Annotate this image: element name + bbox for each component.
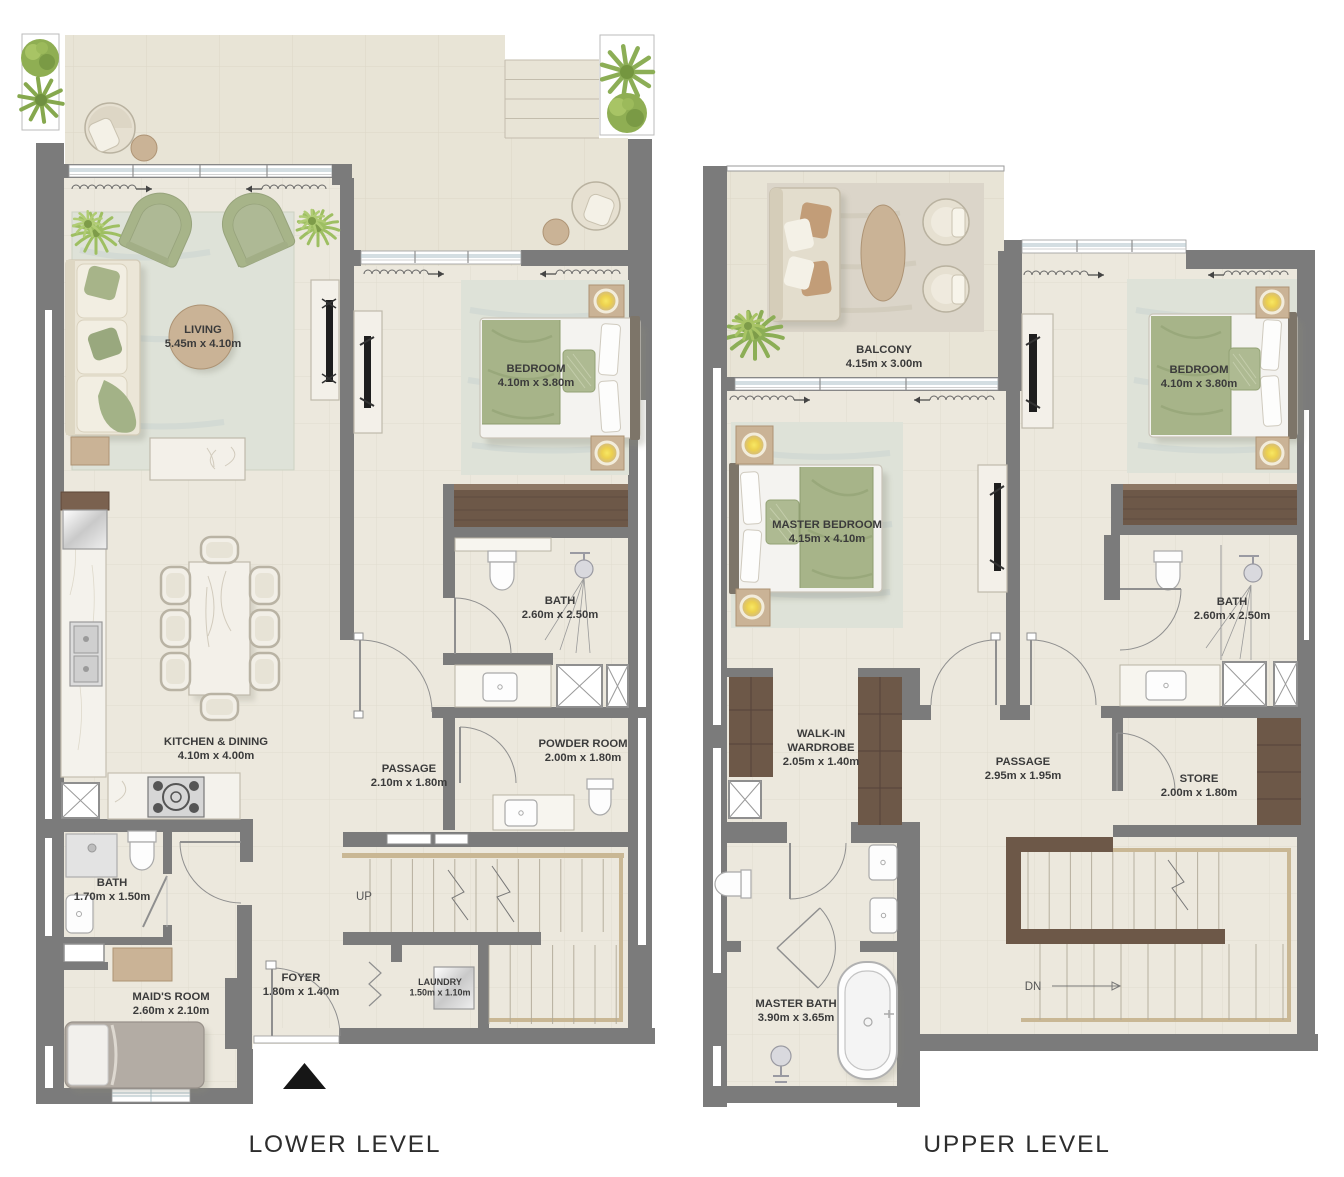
svg-text:2.00m x 1.80m: 2.00m x 1.80m [545, 752, 622, 764]
svg-text:WARDROBE: WARDROBE [787, 742, 855, 754]
svg-text:DN: DN [1025, 981, 1042, 993]
svg-text:1.70m x 1.50m: 1.70m x 1.50m [74, 891, 151, 903]
svg-text:4.10m x 3.80m: 4.10m x 3.80m [1161, 378, 1238, 390]
svg-text:MASTER BATH: MASTER BATH [755, 998, 836, 1010]
svg-text:4.10m x 4.00m: 4.10m x 4.00m [178, 750, 255, 762]
svg-text:2.60m x 2.50m: 2.60m x 2.50m [1194, 610, 1271, 622]
svg-text:LIVING: LIVING [184, 324, 222, 336]
svg-text:2.10m x 1.80m: 2.10m x 1.80m [371, 777, 448, 789]
svg-text:BEDROOM: BEDROOM [1170, 364, 1229, 376]
svg-text:2.60m x 2.50m: 2.60m x 2.50m [522, 609, 599, 621]
svg-text:MAID'S ROOM: MAID'S ROOM [132, 991, 209, 1003]
svg-text:BEDROOM: BEDROOM [507, 363, 566, 375]
svg-text:POWDER ROOM: POWDER ROOM [538, 738, 627, 750]
svg-text:MASTER BEDROOM: MASTER BEDROOM [772, 519, 882, 531]
svg-text:BATH: BATH [1217, 596, 1248, 608]
svg-text:PASSAGE: PASSAGE [382, 763, 437, 775]
svg-text:UPPER LEVEL: UPPER LEVEL [923, 1131, 1110, 1158]
svg-text:2.05m x 1.40m: 2.05m x 1.40m [783, 756, 860, 768]
svg-text:STORE: STORE [1180, 773, 1219, 785]
svg-text:3.90m x 3.65m: 3.90m x 3.65m [758, 1012, 835, 1024]
svg-text:BATH: BATH [545, 595, 576, 607]
svg-text:1.50m x 1.10m: 1.50m x 1.10m [409, 988, 470, 998]
svg-text:KITCHEN & DINING: KITCHEN & DINING [164, 736, 268, 748]
svg-text:LOWER LEVEL: LOWER LEVEL [249, 1131, 442, 1158]
svg-text:2.95m x 1.95m: 2.95m x 1.95m [985, 770, 1062, 782]
svg-text:BALCONY: BALCONY [856, 344, 912, 356]
svg-text:5.45m x 4.10m: 5.45m x 4.10m [165, 338, 242, 350]
svg-text:WALK-IN: WALK-IN [797, 728, 845, 740]
svg-text:4.15m x 4.10m: 4.15m x 4.10m [789, 533, 866, 545]
svg-text:2.60m x 2.10m: 2.60m x 2.10m [133, 1005, 210, 1017]
svg-text:UP: UP [356, 891, 372, 903]
svg-text:BATH: BATH [97, 877, 128, 889]
svg-text:4.15m x 3.00m: 4.15m x 3.00m [846, 358, 923, 370]
svg-text:LAUNDRY: LAUNDRY [418, 977, 462, 987]
svg-text:2.00m x 1.80m: 2.00m x 1.80m [1161, 787, 1238, 799]
svg-text:4.10m x 3.80m: 4.10m x 3.80m [498, 377, 575, 389]
svg-text:PASSAGE: PASSAGE [996, 756, 1051, 768]
